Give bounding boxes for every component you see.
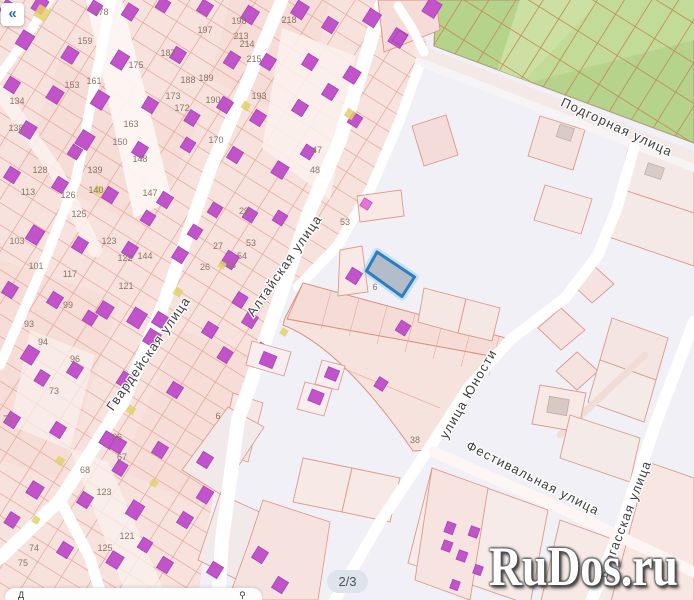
svg-text:134: 134 xyxy=(9,96,24,106)
svg-text:193: 193 xyxy=(251,91,266,101)
svg-text:101: 101 xyxy=(28,261,43,271)
svg-text:125: 125 xyxy=(71,209,86,219)
svg-text:190: 190 xyxy=(205,95,220,105)
svg-text:188: 188 xyxy=(180,75,195,85)
svg-text:161: 161 xyxy=(86,76,101,86)
svg-text:6: 6 xyxy=(372,282,377,292)
svg-text:214: 214 xyxy=(239,39,254,49)
svg-text:55: 55 xyxy=(226,260,236,270)
svg-text:140: 140 xyxy=(88,185,103,195)
svg-text:122: 122 xyxy=(117,253,132,263)
svg-text:6: 6 xyxy=(215,411,220,421)
svg-text:71: 71 xyxy=(3,414,13,424)
svg-text:170: 170 xyxy=(208,135,223,145)
svg-text:173: 173 xyxy=(165,91,180,101)
svg-text:144: 144 xyxy=(137,251,152,261)
svg-text:218: 218 xyxy=(281,15,296,25)
svg-text:163: 163 xyxy=(123,119,138,129)
svg-text:197: 197 xyxy=(197,25,212,35)
svg-text:178: 178 xyxy=(93,7,108,17)
svg-text:93: 93 xyxy=(24,319,34,329)
svg-text:99: 99 xyxy=(63,300,73,310)
svg-text:128: 128 xyxy=(32,165,47,175)
svg-text:123: 123 xyxy=(101,236,116,246)
svg-text:126: 126 xyxy=(60,190,75,200)
svg-text:175: 175 xyxy=(128,60,143,70)
svg-text:94: 94 xyxy=(38,337,48,347)
svg-text:103: 103 xyxy=(9,236,24,246)
svg-text:68: 68 xyxy=(80,465,90,475)
svg-text:73: 73 xyxy=(49,386,59,396)
svg-text:74: 74 xyxy=(29,543,39,553)
svg-text:159: 159 xyxy=(77,36,92,46)
svg-text:48: 48 xyxy=(310,165,320,175)
svg-text:66: 66 xyxy=(112,432,122,442)
svg-text:117: 117 xyxy=(63,269,77,279)
svg-text:67: 67 xyxy=(117,452,127,462)
svg-text:96: 96 xyxy=(70,354,80,364)
svg-text:215: 215 xyxy=(246,54,261,64)
svg-text:27: 27 xyxy=(213,241,223,251)
svg-text:53: 53 xyxy=(246,238,256,248)
svg-text:187: 187 xyxy=(160,48,175,58)
svg-text:198: 198 xyxy=(231,16,246,26)
svg-text:47: 47 xyxy=(312,145,322,155)
svg-text:38: 38 xyxy=(410,435,420,445)
svg-text:123: 123 xyxy=(96,487,111,497)
svg-text:189: 189 xyxy=(198,73,213,83)
svg-text:54: 54 xyxy=(237,251,247,261)
svg-text:150: 150 xyxy=(112,137,127,147)
svg-text:26: 26 xyxy=(200,262,210,272)
svg-text:75: 75 xyxy=(18,558,28,568)
svg-text:29: 29 xyxy=(239,206,249,216)
svg-text:125: 125 xyxy=(97,543,112,553)
svg-text:147: 147 xyxy=(142,188,157,198)
svg-text:139: 139 xyxy=(87,165,102,175)
svg-text:153: 153 xyxy=(64,80,79,90)
svg-text:138: 138 xyxy=(8,123,23,133)
svg-text:121: 121 xyxy=(119,531,134,541)
svg-text:121: 121 xyxy=(118,281,133,291)
svg-text:53: 53 xyxy=(340,217,350,227)
svg-text:172: 172 xyxy=(174,103,189,113)
svg-text:113: 113 xyxy=(21,187,35,197)
svg-text:148: 148 xyxy=(132,154,147,164)
